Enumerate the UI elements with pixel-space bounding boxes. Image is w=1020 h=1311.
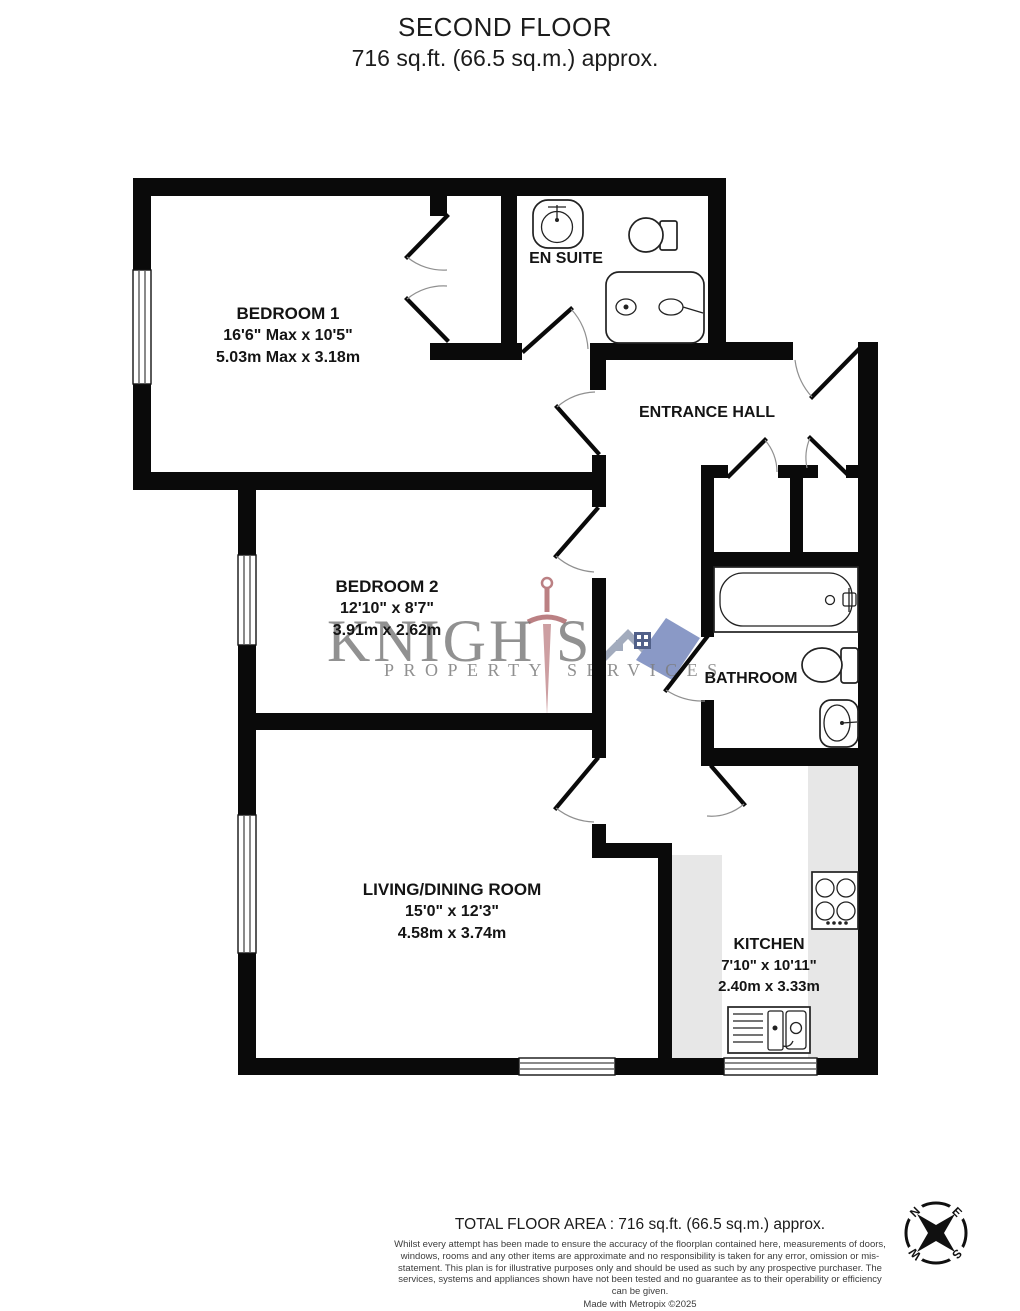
wall-hall-top (726, 342, 793, 360)
living-dims-imperial: 15'0" x 12'3" (363, 901, 542, 923)
floorplan-drawing: N E S W (0, 0, 1020, 1303)
wall-corridor-left-stub (592, 455, 606, 507)
metropix-credit: Made with Metropix ©2025 (390, 1299, 890, 1311)
wall-cupboard-stub-right (846, 465, 860, 478)
bedroom1-dims-metric: 5.03m Max x 3.18m (216, 347, 360, 369)
wall-bottom-left (238, 1058, 519, 1075)
wall-bed2-living-divider (238, 713, 606, 730)
door-bedroom1 (557, 392, 598, 453)
wall-cupboard-stub-left (701, 465, 728, 478)
door-bedroom2 (556, 509, 597, 572)
door-front-entrance (795, 349, 859, 397)
window-bedroom1 (133, 270, 151, 384)
wall-corridor-left (592, 578, 606, 758)
kitchen-sink-icon (728, 1007, 810, 1053)
disclaimer: Whilst every attempt has been made to en… (390, 1239, 890, 1311)
wall-bathroom-bottom (701, 748, 858, 766)
kitchen-dims-metric: 2.40m x 3.33m (718, 976, 820, 997)
label-bathroom: BATHROOM (704, 670, 797, 688)
wall-ensuite-left (501, 196, 517, 345)
wall-bathroom-left-lower (701, 700, 714, 750)
bedroom2-dims-imperial: 12'10" x 8'7" (333, 598, 442, 620)
wall-kitchen-left (658, 843, 672, 1075)
wall-cupboard-stub-mid (778, 465, 818, 478)
ensuite-sink-icon (533, 200, 583, 248)
window-bedroom2 (238, 555, 256, 645)
ensuite-shower-icon (606, 272, 704, 343)
bathroom-sink-icon (820, 700, 858, 747)
door-ensuite (524, 309, 588, 351)
bathroom-toilet-icon (802, 648, 858, 683)
wall-bed1-door-stub (590, 343, 606, 390)
door-cupboard-left (729, 440, 777, 476)
compass-icon: N E S W (906, 1203, 966, 1263)
wall-bed2-left-upper (238, 490, 256, 555)
label-bedroom2: BEDROOM 2 12'10" x 8'7" 3.91m x 2.62m (333, 576, 442, 642)
wall-bathroom-top (701, 552, 858, 568)
ensuite-name: EN SUITE (529, 250, 603, 267)
living-name: LIVING/DINING ROOM (363, 879, 542, 901)
door-kitchen (707, 767, 744, 816)
disclaimer-text: Whilst every attempt has been made to en… (394, 1239, 886, 1297)
wall-corridor-bottom (592, 843, 658, 858)
kitchen-name: KITCHEN (718, 934, 820, 955)
wall-wardrobe-bottom (430, 343, 522, 360)
wall-cupboard-left (701, 478, 714, 565)
label-bedroom1: BEDROOM 1 16'6" Max x 10'5" 5.03m Max x … (216, 303, 360, 369)
hall-name: ENTRANCE HALL (639, 404, 775, 421)
wall-living-door-stub (592, 824, 606, 846)
label-kitchen: KITCHEN 7'10" x 10'11" 2.40m x 3.33m (718, 934, 820, 997)
door-wardrobe-bifold (407, 216, 447, 340)
hob-icon (812, 872, 858, 929)
wall-wardrobe-stub-top (430, 196, 447, 216)
bedroom1-dims-imperial: 16'6" Max x 10'5" (216, 325, 360, 347)
ensuite-toilet-icon (629, 218, 677, 252)
label-entrance-hall: ENTRANCE HALL (639, 404, 775, 422)
wall-ensuite-right (708, 178, 726, 360)
wall-bathroom-left-upper (701, 565, 714, 637)
wall-top (133, 178, 726, 196)
floorplan-page: { "title": { "line1": "SECOND FLOOR", "l… (0, 0, 1020, 1303)
kitchen-dims-imperial: 7'10" x 10'11" (718, 955, 820, 976)
wall-left-mid (133, 384, 151, 472)
wall-living-left (238, 953, 256, 1075)
wall-cupboard-divider (790, 478, 803, 565)
door-living (556, 759, 597, 822)
window-living-bottom (519, 1058, 615, 1075)
door-bathroom (666, 637, 707, 701)
window-living-left (238, 815, 256, 953)
total-floor-area: TOTAL FLOOR AREA : 716 sq.ft. (66.5 sq.m… (455, 1216, 825, 1234)
bedroom2-name: BEDROOM 2 (333, 576, 442, 598)
wall-ensuite-bottom (590, 343, 726, 360)
wall-right-outer (858, 342, 878, 1075)
bedroom2-dims-metric: 3.91m x 2.62m (333, 620, 442, 642)
window-kitchen-bottom (724, 1058, 817, 1075)
bathroom-name: BATHROOM (704, 670, 797, 687)
bedroom1-name: BEDROOM 1 (216, 303, 360, 325)
label-living: LIVING/DINING ROOM 15'0" x 12'3" 4.58m x… (363, 879, 542, 945)
living-dims-metric: 4.58m x 3.74m (363, 923, 542, 945)
wall-bed1-bed2-divider (133, 472, 606, 490)
kitchen-counter-left (672, 855, 722, 1058)
label-ensuite: EN SUITE (529, 250, 603, 268)
wall-left-upper (133, 196, 151, 270)
bathtub-icon (714, 567, 858, 632)
